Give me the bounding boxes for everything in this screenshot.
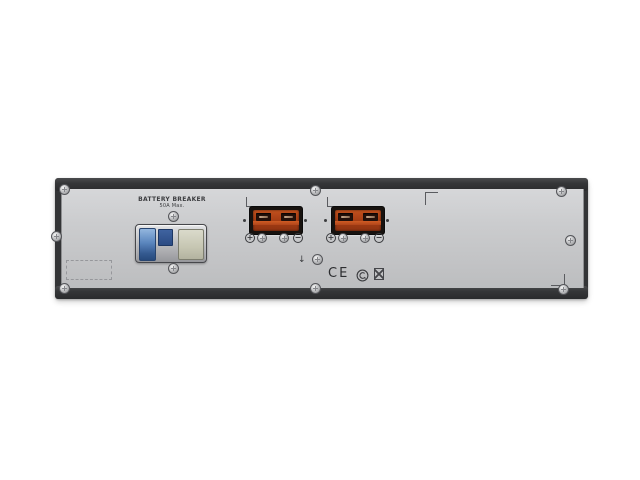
connector-2-terminal-screw-minus — [360, 233, 370, 243]
connector-1-right-dot — [304, 219, 307, 222]
connector-1-contact-right — [284, 216, 293, 218]
chassis-screw-mid-right — [565, 235, 576, 246]
connector-1-slot-right — [281, 213, 296, 221]
battery-connector-1 — [249, 206, 303, 235]
ground-arrow-symbol: ↓ — [298, 256, 306, 265]
connector-1-plus-symbol: + — [245, 233, 255, 243]
battery-breaker-switch — [135, 224, 207, 263]
connector-2-terminal-screw-plus — [338, 233, 348, 243]
breaker-screw-top — [168, 211, 179, 222]
breaker-screw-bottom — [168, 263, 179, 274]
chassis-screw-top-left — [59, 184, 70, 195]
chassis-screw-bottom-middle — [310, 283, 321, 294]
connector-2-left-dot — [324, 219, 327, 222]
connector-2-plus-symbol: + — [326, 233, 336, 243]
connector-2-contact-left — [341, 216, 350, 218]
connector-2-contact-right — [366, 216, 375, 218]
chassis-screw-top-right — [556, 186, 567, 197]
connector-2-right-dot — [386, 219, 389, 222]
connector-1-contact-left — [259, 216, 268, 218]
corner-mark-top-right — [425, 192, 438, 205]
connector-2-midband — [335, 221, 381, 225]
ce-mark: CE — [328, 267, 349, 280]
chassis-screw-bottom-left — [59, 283, 70, 294]
chassis-screw-top-middle — [310, 185, 321, 196]
connector-1-midband — [253, 221, 299, 225]
battery-breaker-label: BATTERY BREAKER 50A Max. — [132, 197, 212, 210]
square-compliance-mark — [374, 268, 384, 280]
connector-1-terminal-screw-plus — [257, 233, 267, 243]
chassis-screw-mid-left — [51, 231, 62, 242]
connector-2-orange-body — [335, 210, 381, 231]
breaker-blue-clip — [158, 229, 173, 246]
battery-connector-2 — [331, 206, 385, 235]
ground-screw — [312, 254, 323, 265]
connector-1-terminal-screw-minus — [279, 233, 289, 243]
connector-2-slot-right — [363, 213, 378, 221]
battery-breaker-label-line2: 50A Max. — [132, 204, 212, 210]
connector-1-left-dot — [243, 219, 246, 222]
connector-2-slot-left — [338, 213, 353, 221]
connector-1-orange-body — [253, 210, 299, 231]
connector-1-minus-symbol: − — [293, 233, 303, 243]
breaker-blue-handle — [139, 228, 156, 261]
battery-pack-rear-panel: BATTERY BREAKER 50A Max. + − + − ↓ — [55, 178, 588, 299]
breaker-beige-block — [178, 229, 204, 260]
connector-2-minus-symbol: − — [374, 233, 384, 243]
connector-1-slot-left — [256, 213, 271, 221]
chassis-screw-bottom-right — [558, 284, 569, 295]
label-placeholder-outline — [66, 260, 112, 280]
round-compliance-mark — [356, 267, 369, 286]
